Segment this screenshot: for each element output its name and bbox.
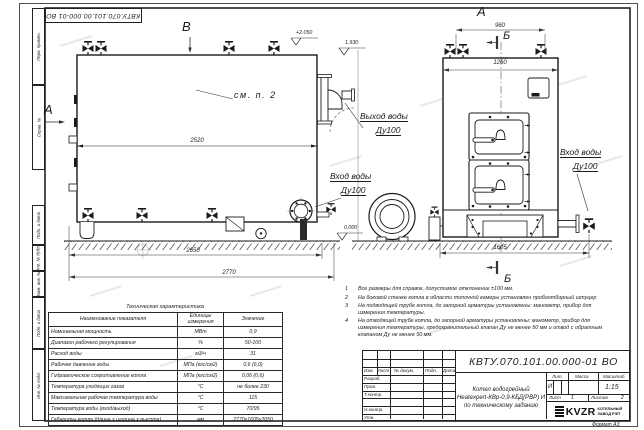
tech-cell-value: 115 [224, 393, 283, 404]
tech-cell-value: 50-100 [224, 338, 283, 349]
title-block: КВТУ.070.101.00.000-01 ВО Изм. Лист № до… [362, 350, 630, 421]
tech-row: Габариты котла (длина х ширина х высота)… [49, 415, 283, 426]
section-label-b-top: Б [503, 31, 510, 42]
mass-label: Масса [575, 375, 589, 380]
lit-label: Лит. [552, 375, 563, 380]
margin-stamp: Инв. № дубл. [32, 245, 45, 271]
tech-cell-name: Номинальная мощность [49, 327, 178, 338]
doc-name-line2: Heatexpert-КВр-0,9-КБД(РВР) И [457, 394, 545, 402]
margin-stamp: Подп. и дата [32, 205, 45, 245]
tech-col-value: Значение [224, 313, 283, 327]
tech-cell-units: м3/ч [178, 349, 224, 360]
tech-cell-name: Диапазон рабочего регулирования [49, 338, 178, 349]
see-note-label: см. п. 2 [234, 91, 277, 100]
kvzr-logo-icon [555, 406, 564, 417]
view-title-a: А [477, 5, 486, 18]
note-item: 3 На подводящей трубе котла, до запорной… [345, 303, 613, 316]
col-list: Лист [378, 369, 390, 374]
dim-1260: 1260 [486, 60, 514, 66]
inlet-right-label-line2: Ду100 [573, 162, 598, 172]
tech-col-name: Наименование показателя [49, 313, 178, 327]
col-data: Дата [443, 369, 455, 374]
company-logo: KVZR КОТЕЛЬНЫЙ ЗАВОД РЭП [546, 401, 631, 422]
draft-fan [369, 194, 443, 242]
tech-cell-value: 31 [224, 349, 283, 360]
note-number: 4 [345, 318, 358, 338]
dim-1605: 1605 [486, 245, 514, 251]
row-tkontr: Т.контр. [364, 393, 383, 398]
tech-cell-name: Габариты котла (длина х ширина х высота) [49, 415, 178, 426]
company-line2: ЗАВОД РЭП [598, 412, 623, 416]
tech-cell-value: 0,6 (6,0) [224, 360, 283, 371]
tech-cell-units: °С [178, 404, 224, 415]
tech-row: Гидравлическое сопротивление котла МПа (… [49, 371, 283, 382]
door-handle-icon [496, 180, 505, 190]
door-handle-icon [496, 130, 505, 140]
note-text: На боковой стенке котла в области топочн… [358, 295, 613, 302]
view-label-v: В [182, 20, 191, 33]
tech-cell-units: °С [178, 393, 224, 404]
designation-stamp-text: КВТУ.070.101.00.000-01 ВО [46, 12, 140, 19]
sheets-value: 2 [621, 396, 624, 401]
inlet-left-label-line1: Вход воды [330, 172, 371, 182]
tech-cell-value: 0,06 (0,6) [224, 371, 283, 382]
note-text: На отводящей трубе котла, до запорной ар… [358, 318, 613, 338]
tech-cell-value: не более 230 [224, 382, 283, 393]
tech-cell-name: Температура воды (вход/выход) [49, 404, 178, 415]
elevation-ground: 0.000 [344, 226, 357, 231]
tech-row: Расход воды м3/ч 31 [49, 349, 283, 360]
margin-stamp: Перв. примен. [32, 8, 45, 85]
col-podp: Подп. [425, 369, 437, 374]
document-name: Котел водогрейный Heatexpert-КВр-0,9-КБД… [455, 373, 546, 422]
boiler-doors [469, 113, 530, 210]
margin-stamp: Взам. инв. № [32, 271, 45, 297]
margin-stamp: Инв. № подл. [32, 349, 45, 421]
boiler-side-view [69, 41, 355, 240]
tech-cell-units: МПа (кгс/см2) [178, 360, 224, 371]
scale-label: Масштаб [603, 375, 624, 380]
outlet-elbow [318, 75, 355, 133]
margin-stamp-label: Справ. № [36, 118, 41, 138]
tech-header-row: Наименование показателя Единицы измерени… [49, 313, 283, 327]
tech-cell-value: 70/95 [224, 404, 283, 415]
ground-hatching [64, 241, 612, 250]
tech-cell-name: Рабочее давление воды [49, 360, 178, 371]
sheets-label: Листов [591, 396, 608, 401]
note-text: Все размеры для справок, допустимое откл… [358, 286, 613, 293]
format-note: Формат А3 [592, 422, 619, 428]
title-block-designation: КВТУ.070.101.00.000-01 ВО [455, 351, 631, 373]
logo-text: KVZR [566, 406, 596, 418]
tech-cell-name: Температура уходящих газов [49, 382, 178, 393]
tech-cell-units: мм [178, 415, 224, 426]
view-label-a-marker: А [44, 103, 53, 116]
row-prov: Пров. [364, 385, 376, 390]
row-razrab: Разраб. [364, 377, 381, 382]
company-line1: КОТЕЛЬНЫЙ [598, 407, 623, 411]
doc-name-line3: по техническому заданию [464, 402, 538, 410]
section-label-b-bottom: Б [504, 274, 511, 285]
tech-cell-value: 2770х1605х2050 [224, 415, 283, 426]
col-izm: Изм. [364, 369, 374, 374]
tech-table: Наименование показателя Единицы измерени… [48, 312, 283, 426]
tech-row: Температура воды (вход/выход) °С 70/95 [49, 404, 283, 415]
margin-stamp: Справ. № [32, 85, 45, 170]
tech-cell-units: % [178, 338, 224, 349]
tech-row: Рабочее давление воды МПа (кгс/см2) 0,6 … [49, 360, 283, 371]
tech-row: Диапазон рабочего регулирования % 50-100 [49, 338, 283, 349]
elevation-top: +2.050 [296, 31, 312, 36]
sheet-value: 1 [571, 396, 574, 401]
designation-stamp: КВТУ.070.101.00.000-01 ВО [45, 8, 142, 23]
tech-table-title: Техническая характеристика [48, 304, 282, 310]
margin-stamp-label: Перв. примен. [36, 32, 41, 61]
tech-row: Максимальная рабочая температура воды °С… [49, 393, 283, 404]
outlet-label-line2: Ду100 [376, 126, 401, 136]
dim-2650: 2650 [178, 248, 208, 254]
margin-stamp-label: Инв. № дубл. [36, 245, 41, 271]
dim-2770: 2770 [214, 270, 244, 276]
margin-stamp: Подп. и дата [32, 297, 45, 349]
note-item: 1 Все размеры для справок, допустимое от… [345, 286, 613, 293]
margin-stamp-label: Инв. № подл. [36, 372, 41, 399]
row-nkontr: Н.контр. [364, 408, 383, 413]
elevation-outlet: 1.930 [345, 41, 358, 46]
tech-cell-name: Максимальная рабочая температура воды [49, 393, 178, 404]
tech-cell-name: Гидравлическое сопротивление котла [49, 371, 178, 382]
drawing-sheet: В А А Б Б см. п. 2 2520 2650 2770 960 12… [0, 0, 644, 430]
margin-stamp-label: Подп. и дата [36, 310, 41, 337]
notes-list: 1 Все размеры для справок, допустимое от… [345, 286, 613, 340]
sheet-label: Лист [549, 396, 561, 401]
tech-row: Номинальная мощность МВт 0,9 [49, 327, 283, 338]
tech-cell-value: 0,9 [224, 327, 283, 338]
note-item: 4 На отводящей трубе котла, до запорной … [345, 318, 613, 338]
note-number: 2 [345, 295, 358, 302]
tech-row: Температура уходящих газов °С не более 2… [49, 382, 283, 393]
inlet-right-label-line1: Вход воды [560, 148, 601, 158]
tech-col-units: Единицы измерения [178, 313, 224, 327]
note-number: 1 [345, 286, 358, 293]
col-doc: № докум. [394, 369, 414, 374]
doc-name-line1: Котел водогрейный [472, 386, 529, 394]
note-number: 3 [345, 303, 358, 316]
dim-2520: 2520 [183, 138, 211, 144]
note-text: На подводящей трубе котла, до запорной а… [358, 303, 613, 316]
note-item: 2 На боковой стенке котла в области топо… [345, 295, 613, 302]
scale-value: 1:15 [605, 384, 619, 391]
outlet-label-line1: Выход воды [360, 112, 408, 122]
lit-value: И [548, 384, 552, 390]
margin-stamp-label: Подп. и дата [36, 212, 41, 239]
tech-cell-units: °С [178, 382, 224, 393]
tech-cell-name: Расход воды [49, 349, 178, 360]
row-utv: Утв. [364, 416, 374, 421]
dim-960: 960 [486, 23, 514, 29]
inlet-left-label-line2: Ду100 [341, 186, 366, 196]
tech-cell-units: МПа (кгс/см2) [178, 371, 224, 382]
tech-cell-units: МВт [178, 327, 224, 338]
company-name: КОТЕЛЬНЫЙ ЗАВОД РЭП [598, 407, 623, 416]
margin-stamp-label: Взам. инв. № [36, 271, 41, 298]
